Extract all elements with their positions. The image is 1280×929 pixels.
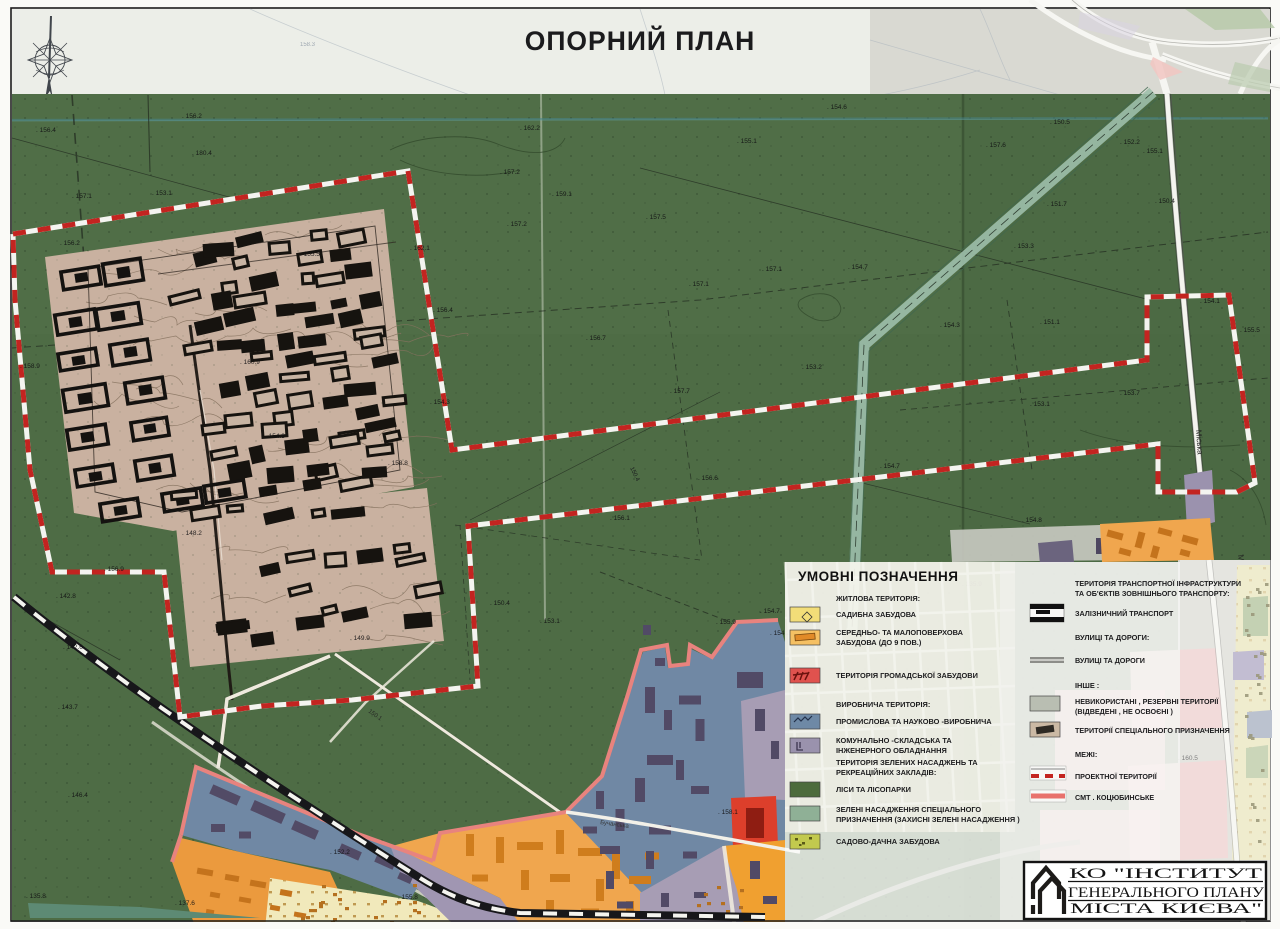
- svg-text:. 160.9: . 160.9: [240, 359, 260, 366]
- svg-text:. 155.5: . 155.5: [1240, 327, 1260, 334]
- svg-text:. 149.9: . 149.9: [350, 635, 370, 642]
- svg-text:. 157.2: . 157.2: [500, 169, 520, 176]
- svg-text:ВУЛИЦІ ТА ДОРОГИ:: ВУЛИЦІ ТА ДОРОГИ:: [1075, 633, 1149, 642]
- svg-text:ОПОРНИЙ ПЛАН: ОПОРНИЙ ПЛАН: [525, 26, 755, 56]
- svg-text:. 153.1: . 153.1: [152, 190, 172, 197]
- svg-text:. 142.8: . 142.8: [56, 593, 76, 600]
- svg-text:ТА ОБ'ЄКТІВ ЗОВНІШНЬОГО ТРАНС: ТА ОБ'ЄКТІВ ЗОВНІШНЬОГО ТРАНСПОРТУ:: [1075, 589, 1230, 598]
- svg-text:. 154.7: . 154.7: [760, 608, 780, 615]
- svg-text:. 154.6: . 154.6: [827, 104, 847, 111]
- svg-text:. 152.2: . 152.2: [330, 849, 350, 856]
- svg-text:ЗАЛІЗНИЧНИЙ ТРАНСПОРТ: ЗАЛІЗНИЧНИЙ ТРАНСПОРТ: [1075, 609, 1174, 618]
- svg-text:. 142.6: . 142.6: [63, 644, 83, 651]
- svg-text:КОМУНАЛЬНО -СКЛАДСЬКА ТА: КОМУНАЛЬНО -СКЛАДСЬКА ТА: [836, 736, 952, 745]
- svg-text:САДОВО-ДАЧНА ЗАБУДОВА: САДОВО-ДАЧНА ЗАБУДОВА: [836, 837, 940, 846]
- svg-text:ІНЖЕНЕРНОГО ОБЛАДНАННЯ: ІНЖЕНЕРНОГО ОБЛАДНАННЯ: [836, 746, 947, 755]
- svg-text:. 156.6: . 156.6: [698, 475, 718, 482]
- svg-text:ГЕНЕРАЛЬНОГО ПЛАНУ: ГЕНЕРАЛЬНОГО ПЛАНУ: [1068, 885, 1265, 901]
- svg-text:. 159.1: . 159.1: [552, 191, 572, 198]
- svg-text:. 154.3: . 154.3: [940, 322, 960, 329]
- svg-text:ВИРОБНИЧА ТЕРИТОРІЯ:: ВИРОБНИЧА ТЕРИТОРІЯ:: [836, 700, 930, 709]
- svg-text:. 157.6: . 157.6: [986, 142, 1006, 149]
- svg-text:. 152.2: . 152.2: [1120, 139, 1140, 146]
- svg-text:. 156.2: . 156.2: [60, 240, 80, 247]
- svg-text:МІСТА КИЄВА": МІСТА КИЄВА": [1070, 901, 1262, 917]
- svg-text:. 146.4: . 146.4: [68, 792, 88, 799]
- svg-text:. 156.4: . 156.4: [433, 307, 453, 314]
- svg-text:. 155.1: . 155.1: [1143, 148, 1163, 155]
- svg-text:. 157.5: . 157.5: [646, 214, 666, 221]
- svg-text:. 157.2: . 157.2: [507, 221, 527, 228]
- svg-text:СЕРЕДНЬО- ТА МАЛОПОВЕРХОВА: СЕРЕДНЬО- ТА МАЛОПОВЕРХОВА: [836, 628, 964, 637]
- svg-text:. 143.7: . 143.7: [58, 704, 78, 711]
- svg-text:ПРОМИСЛОВА ТА НАУКОВО -ВИРОБНИ: ПРОМИСЛОВА ТА НАУКОВО -ВИРОБНИЧА: [836, 717, 992, 726]
- svg-text:ПРИЗНАЧЕННЯ (ЗАХИСНІ ЗЕЛЕНІ НА: ПРИЗНАЧЕННЯ (ЗАХИСНІ ЗЕЛЕНІ НАСАДЖЕННЯ ): [836, 815, 1020, 824]
- svg-text:. 158.1: . 158.1: [718, 809, 738, 816]
- svg-text:ВУЛИЦІ ТА ДОРОГИ: ВУЛИЦІ ТА ДОРОГИ: [1075, 656, 1145, 665]
- svg-text:СМТ . КОЦЮБИНСЬКЕ: СМТ . КОЦЮБИНСЬКЕ: [1075, 793, 1154, 802]
- svg-text:ТЕРИТОРІЯ ЗЕЛЕНИХ НАСАДЖЕНЬ ТА: ТЕРИТОРІЯ ЗЕЛЕНИХ НАСАДЖЕНЬ ТА: [836, 758, 978, 767]
- svg-text:. 154.8: . 154.8: [1022, 517, 1042, 524]
- svg-text:. 162.1: . 162.1: [410, 245, 430, 252]
- svg-text:. 162.2: . 162.2: [520, 125, 540, 132]
- svg-text:. 156.4: . 156.4: [36, 127, 56, 134]
- svg-text:ЖИТЛОВА ТЕРИТОРІЯ:: ЖИТЛОВА ТЕРИТОРІЯ:: [835, 594, 920, 603]
- svg-text:. 156.1: . 156.1: [610, 515, 630, 522]
- svg-text:. 151.7: . 151.7: [1047, 201, 1067, 208]
- svg-text:. 137.6: . 137.6: [175, 900, 195, 907]
- svg-text:. 150.5: . 150.5: [1050, 119, 1070, 126]
- svg-text:. 157.1: . 157.1: [762, 266, 782, 273]
- svg-text:. 153.7: . 153.7: [1120, 390, 1140, 397]
- svg-text:. 157.1: . 157.1: [689, 281, 709, 288]
- svg-text:. 155.8: . 155.8: [398, 894, 418, 901]
- svg-text:ПРОЕКТНОЇ ТЕРИТОРІЇ: ПРОЕКТНОЇ ТЕРИТОРІЇ: [1075, 772, 1158, 781]
- svg-text:(ВІДВЕДЕНІ , НЕ ОСВОЄНІ ): (ВІДВЕДЕНІ , НЕ ОСВОЄНІ ): [1075, 707, 1173, 716]
- svg-text:. 156.7: . 156.7: [586, 335, 606, 342]
- svg-text:КО "ІНСТИТУТ: КО "ІНСТИТУТ: [1069, 866, 1262, 882]
- svg-text:ЛІСИ ТА ЛІСОПАРКИ: ЛІСИ ТА ЛІСОПАРКИ: [836, 785, 911, 794]
- svg-text:. 180.4: . 180.4: [192, 150, 212, 157]
- svg-text:МЕЖІ:: МЕЖІ:: [1075, 750, 1097, 759]
- svg-text:ТЕРИТОРІЯ ТРАНСПОРТНОЇ ІНФРАСТ: ТЕРИТОРІЯ ТРАНСПОРТНОЇ ІНФРАСТРУКТУРИ: [1075, 579, 1241, 588]
- svg-text:. 154.7: . 154.7: [880, 463, 900, 470]
- svg-text:. 153.1: . 153.1: [1030, 401, 1050, 408]
- svg-text:. 154.1: . 154.1: [1200, 298, 1220, 305]
- svg-text:РЕКРЕАЦІЙНИХ ЗАКЛАДІВ:: РЕКРЕАЦІЙНИХ ЗАКЛАДІВ:: [836, 768, 936, 777]
- svg-text:. 150.4: . 150.4: [1155, 198, 1175, 205]
- svg-text:ЗАБУДОВА (ДО 9 ПОВ.): ЗАБУДОВА (ДО 9 ПОВ.): [836, 638, 922, 647]
- svg-text:. 135.8: . 135.8: [26, 893, 46, 900]
- svg-text:. 157.1: . 157.1: [72, 193, 92, 200]
- svg-text:. 150.4: . 150.4: [490, 600, 510, 607]
- svg-text:. 153.2: . 153.2: [802, 364, 822, 371]
- svg-text:. 157.7: . 157.7: [670, 388, 690, 395]
- svg-text:. 148.2: . 148.2: [182, 530, 202, 537]
- svg-text:158.3: 158.3: [300, 42, 316, 48]
- svg-text:НЕВИКОРИСТАНІ , РЕЗЕРВНІ ТЕРИТ: НЕВИКОРИСТАНІ , РЕЗЕРВНІ ТЕРИТОРІЇ: [1075, 697, 1219, 706]
- svg-text:. 158.9: . 158.9: [20, 363, 40, 370]
- svg-text:УМОВНІ ПОЗНАЧЕННЯ: УМОВНІ ПОЗНАЧЕННЯ: [798, 569, 958, 584]
- svg-text:. 154.7: . 154.7: [848, 264, 868, 271]
- svg-text:Міська: Міська: [1194, 430, 1205, 456]
- svg-text:. 156.2: . 156.2: [182, 113, 202, 120]
- svg-text:. 154.3: . 154.3: [265, 433, 285, 440]
- svg-text:. 156.9: . 156.9: [104, 566, 124, 573]
- svg-text:. 155.5: . 155.5: [300, 251, 320, 258]
- svg-text:. 151.1: . 151.1: [1040, 319, 1060, 326]
- svg-text:. 154.3: . 154.3: [430, 399, 450, 406]
- svg-text:. 155.1: . 155.1: [737, 138, 757, 145]
- svg-text:. 153.3: . 153.3: [1014, 243, 1034, 250]
- svg-text:ТЕРИТОРІЯ ГРОМАДСЬКОЇ ЗАБУДОВИ: ТЕРИТОРІЯ ГРОМАДСЬКОЇ ЗАБУДОВИ: [836, 671, 978, 680]
- svg-text:ТЕРИТОРІЇ СПЕЦІАЛЬНОГО ПРИЗНАЧ: ТЕРИТОРІЇ СПЕЦІАЛЬНОГО ПРИЗНАЧЕННЯ: [1075, 726, 1230, 735]
- svg-text:. 155.9: . 155.9: [716, 619, 736, 626]
- svg-text:ІНШЕ :: ІНШЕ :: [1075, 681, 1099, 690]
- svg-text:ЗЕЛЕНІ НАСАДЖЕННЯ СПЕЦІАЛЬНОГО: ЗЕЛЕНІ НАСАДЖЕННЯ СПЕЦІАЛЬНОГО: [836, 805, 981, 814]
- svg-text:. 158.8: . 158.8: [388, 460, 408, 467]
- svg-text:. 153.1: . 153.1: [540, 618, 560, 625]
- svg-text:САДИБНА ЗАБУДОВА: САДИБНА ЗАБУДОВА: [836, 610, 917, 619]
